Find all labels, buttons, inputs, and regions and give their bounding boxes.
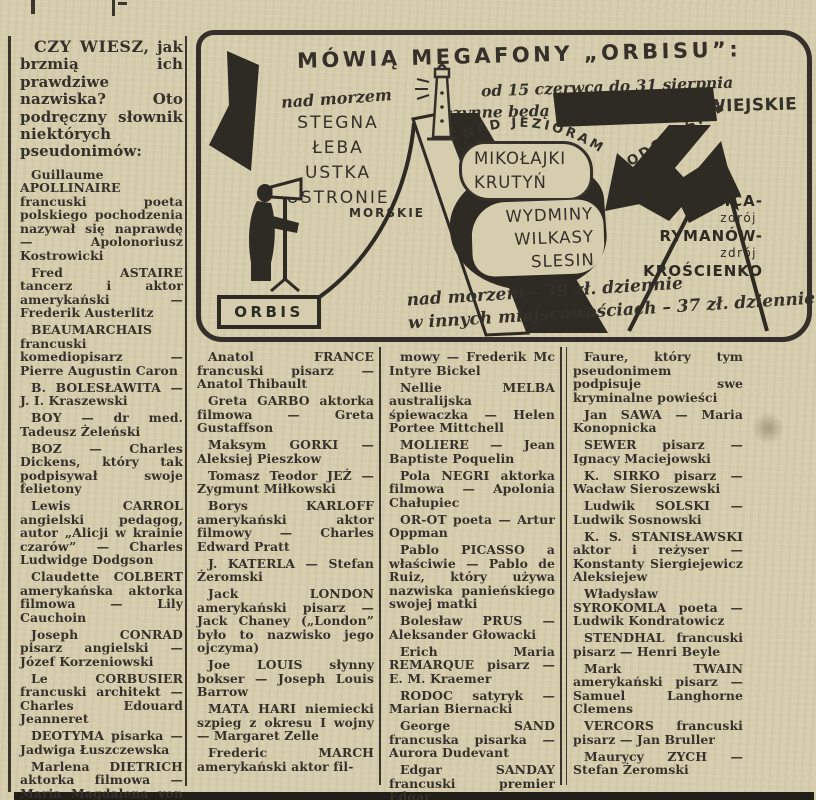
dictionary-entry: BOZ — Charles Dickens, który tak podpisy… (20, 442, 183, 496)
dictionary-entry: Borys KARLOFF amerykański aktor filmowy … (197, 499, 374, 553)
sea-resorts-list: STEGNAŁEBAUSTKAUSTRONIE (277, 111, 399, 211)
lakes-light-blob: WYDMINYWILKASYSLESIN (471, 199, 606, 278)
dictionary-entry: Guillaume APOLLINAIRE francuski poeta po… (20, 168, 183, 263)
dictionary-entry: mowy — Frederik Mc Intyre Bickel (389, 350, 555, 377)
dictionary-entry: Jack LONDON amerykański pisarz — Jack Ch… (197, 587, 374, 655)
dictionary-column-2: Anatol FRANCE francuski pisarz — Anatol … (197, 350, 374, 777)
dictionary-entry: VERCORS francuski pisarz — Jan Bruller (573, 719, 743, 746)
column-rule-3 (560, 347, 562, 785)
dictionary-entry: MOLIERE — Jean Baptiste Poquelin (389, 438, 555, 465)
lakes-resorts-group-1: MIKOŁAJKIKRUTYŃ (474, 147, 566, 195)
mountain-resort-suffix: zdrój (635, 211, 763, 226)
dictionary-entry: Joe LOUIS słynny bokser — Joseph Louis B… (197, 658, 374, 699)
column-rule-3b (566, 347, 567, 785)
dictionary-entry: Edgar SANDAY francuski premier Edgar (389, 763, 555, 800)
column-1-entries: Guillaume APOLLINAIRE francuski poeta po… (20, 168, 183, 800)
dictionary-entry: Ludwik SOLSKI — Ludwik Sosnowski (573, 499, 743, 526)
dictionary-entry: Fred ASTAIRE tancerz i aktor amerykański… (20, 266, 183, 320)
sea-resort: ŁEBA (277, 136, 399, 161)
lake-resort: WYDMINY (505, 202, 593, 228)
dictionary-entry: Bolesław PRUS — Aleksander Głowacki (389, 614, 555, 641)
dictionary-column-1: CZY WIESZ, jak brzmią ich prawdziwe nazw… (20, 38, 183, 800)
dictionary-entry: K. S. STANISŁAWSKI aktor i reżyser — Kon… (573, 530, 743, 584)
orbis-advertisement: MÓWIĄ MEGAFONY „ORBISU”: od 15 czerwca d… (196, 30, 812, 342)
dictionary-entry: STENDHAL francuski pisarz — Henri Beyle (573, 631, 743, 658)
dictionary-entry: OR-OT poeta — Artur Oppman (389, 513, 555, 540)
column-rule-2 (379, 347, 381, 785)
dictionary-entry: Greta GARBO aktorka filmowa — Greta Gust… (197, 394, 374, 435)
ad-date-line: od 15 czerwca do 31 sierpnia (481, 75, 734, 99)
dictionary-entry: Anatol FRANCE francuski pisarz — Anatol … (197, 350, 374, 391)
dictionary-entry: RODOC satyryk — Marian Biernacki (389, 689, 555, 716)
dictionary-entry: Nellie MELBA australijska śpiewaczka — H… (389, 381, 555, 435)
dictionary-entry: George SAND francuska pisarka — Aurora D… (389, 719, 555, 760)
dictionary-entry: BEAUMARCHAIS francuski komediopisarz — P… (20, 323, 183, 377)
dictionary-entry: BOY — dr med. Tadeusz Żeleński (20, 411, 183, 438)
sea-resort: STEGNA (277, 111, 399, 136)
ribbon-flag-icon (191, 49, 263, 179)
dictionary-entry: Władysław SYROKOMLA poeta — Ludwik Kondr… (573, 587, 743, 628)
lighthouse-icon (413, 59, 461, 145)
dictionary-entry: Mark TWAIN amerykański pisarz — Samuel L… (573, 662, 743, 716)
dictionary-entry: Pola NEGRI aktorka filmowa — Apolonia Ch… (389, 469, 555, 510)
lake-resort: KRUTYŃ (474, 171, 566, 195)
mountain-resorts-list: POLANICA- zdrój RYMANÓW- zdrój KROŚCIENK… (635, 191, 763, 281)
column-rule-left (8, 36, 11, 792)
intro-rest: jak brzmią ich prawdziwe nazwiska? Oto p… (20, 38, 183, 160)
dictionary-entry: Pablo PICASSO a właściwie — Pablo de Rui… (389, 543, 555, 611)
dictionary-entry: Frederic MARCH amerykański aktor fil- (197, 746, 374, 773)
dictionary-entry: Jan SAWA — Maria Konopnicka (573, 408, 743, 435)
price-lines: nad morzem – 39 zł. dziennie w innych mi… (406, 265, 816, 336)
lake-resort: MIKOŁAJKI (474, 147, 566, 171)
ad-open-prefix: czynne będą nasze (443, 99, 610, 122)
dictionary-entry: Lewis CARROL angielski pedagog, autor „A… (20, 499, 183, 567)
mountain-resort: RYMANÓW- (635, 226, 763, 246)
dictionary-entry: Joseph CONRAD pisarz angielski — Józef K… (20, 628, 183, 669)
mountain-resort-suffix: zdrój (635, 246, 763, 261)
dictionary-entry: Faure, który tym pseudonimem podpisuje s… (573, 350, 743, 404)
dictionary-entry: MATA HARI niemiecki szpieg z okresu I wo… (197, 702, 374, 743)
paper-stain (746, 406, 790, 450)
newspaper-page: CZY WIESZ, jak brzmią ich prawdziwe nazw… (0, 0, 816, 800)
dictionary-entry: J. KATERLA — Stefan Żeromski (197, 557, 374, 584)
dictionary-entry: Le CORBUSIER francuski architekt — Charl… (20, 672, 183, 726)
lakes-bubble: MIKOŁAJKIKRUTYŃ (459, 141, 593, 201)
dictionary-entry: Maurycy ZYCH — Stefan Żeromski (573, 750, 743, 777)
orbis-logo: ORBIS (217, 295, 321, 329)
print-remnant-mark (118, 2, 127, 5)
dictionary-entry: DEOTYMA pisarka — Jadwiga Łuszczewska (20, 729, 183, 756)
dictionary-entry: SEWER pisarz — Ignacy Maciejowski (573, 438, 743, 465)
dictionary-entry: Maksym GORKI — Aleksiej Pieszkow (197, 438, 374, 465)
dictionary-entry: B. BOLESŁAWITA — J. I. Kraszewski (20, 381, 183, 408)
ad-title: MÓWIĄ MEGAFONY „ORBISU”: (297, 39, 742, 72)
sea-region-label: nad morzem (281, 87, 393, 111)
dictionary-column-4: Faure, który tym pseudonimem podpisuje s… (573, 350, 743, 780)
dictionary-column-3: mowy — Frederik Mc Intyre BickelNellie M… (389, 350, 555, 800)
dictionary-entry: Tomasz Teodor JEŻ — Zygmunt Miłkowski (197, 469, 374, 496)
intro-paragraph: CZY WIESZ, jak brzmią ich prawdziwe nazw… (20, 38, 183, 161)
print-remnant-mark (31, 0, 35, 14)
mountain-resort: POLANICA- (635, 191, 763, 211)
intro-lead: CZY WIESZ, (34, 37, 150, 56)
dictionary-entry: K. SIRKO pisarz — Wacław Sieroszewski (573, 469, 743, 496)
dictionary-entry: Claudette COLBERT amerykańska aktorka fi… (20, 570, 183, 624)
dictionary-entry: Marlena DIETRICH aktorka filmowa — Maria… (20, 760, 183, 800)
lake-resort: SLESIN (507, 248, 595, 274)
lake-resort: WILKASY (506, 225, 594, 251)
column-rule-1 (185, 36, 187, 786)
orbis-logo-text: ORBIS (234, 303, 304, 321)
sea-resort: USTKA (277, 161, 399, 186)
lakes-resorts-group-2: WYDMINYWILKASYSLESIN (505, 202, 595, 274)
sea-resort-suffix: MORSKIE (349, 207, 425, 219)
dictionary-entry: Erich Maria REMARQUE pisarz — E. M. Krae… (389, 645, 555, 686)
print-remnant-mark (112, 0, 115, 16)
